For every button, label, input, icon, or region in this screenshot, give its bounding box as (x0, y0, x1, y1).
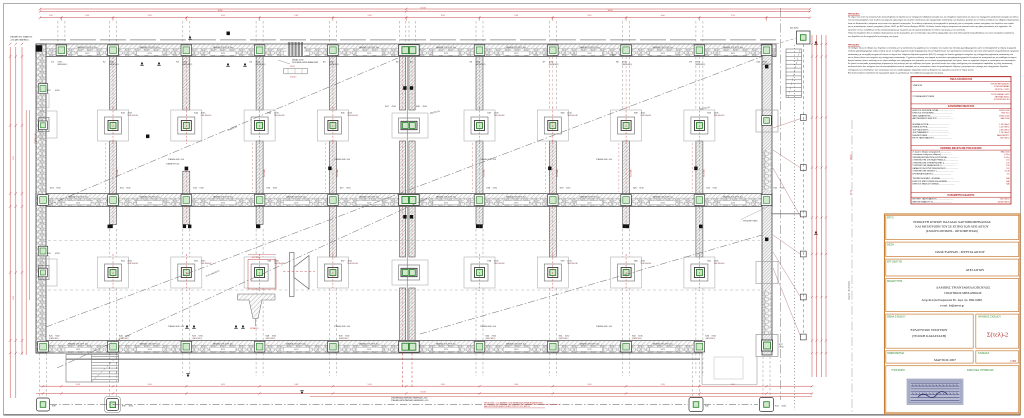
svg-text:ΠΕΔ.180x180: ΠΕΔ.180x180 (128, 262, 138, 265)
svg-text:ΠΕΔ.180x180: ΠΕΔ.180x180 (274, 114, 284, 117)
svg-text:ΠΡΟΣΟΧΗ :: ΠΡΟΣΟΧΗ : (848, 45, 860, 47)
svg-text:ΞΥΛΟΤΥΠΟΣ ΥΠΟΓΕΙΟΥ: ΞΥΛΟΤΥΠΟΣ ΥΠΟΓΕΙΟΥ (910, 328, 948, 332)
svg-text:ΚΙΝΗΤΑ ΦΟΡΤΙΑ.................: ΚΙΝΗΤΑ ΦΟΡΤΙΑ...........................… (913, 126, 949, 129)
svg-text:ΕΛΕΓΧΟΣ ΝΕΩΝ ΣΤΟΙΧΕΙΩΝ........: ΕΛΕΓΧΟΣ ΝΕΩΝ ΣΤΟΙΧΕΙΩΝ..................… (913, 184, 956, 186)
svg-text:Το κτίριο που κατά την κατασκε: Το κτίριο που κατά την κατασκευή θα αποκ… (848, 15, 1018, 18)
svg-text:ΣΤΑΘΜΗ ΑΝΩ ΠΑΡΕΙΑΣ ΘΕΜΕΛΙΩΝ -3: ΣΤΑΘΜΗ ΑΝΩ ΠΑΡΕΙΑΣ ΘΕΜΕΛΙΩΝ -3.60 (391, 396, 427, 399)
svg-text:ΝΑΙ: ΝΑΙ (1006, 177, 1010, 180)
svg-text:ΠΕΔ.180x180: ΠΕΔ.180x180 (347, 262, 357, 265)
svg-text:ΚΑΝΟΝΙΣΜΟΙ ΜΕΛΕΤΗΣ: ΚΑΝΟΝΙΣΜΟΙ ΜΕΛΕΤΗΣ (948, 105, 975, 108)
svg-text:και τις θέσεις όλων των στοιχε: και τις θέσεις όλων των στοιχείων της υπ… (848, 56, 1017, 59)
svg-text:ΝΑΙ: ΝΑΙ (1006, 180, 1010, 183)
svg-text:ΦΡΕΑΤΙΟ: ΦΡΕΑΤΙΟ (250, 327, 259, 330)
svg-text:ΣΥΝΤΕΛΕΣΤΗΣ ΣΕΙΣΜΟΥ ε.........: ΣΥΝΤΕΛΕΣΤΗΣ ΣΕΙΣΜΟΥ ε...................… (913, 171, 955, 173)
svg-text:ΠΕΔ.180x180: ΠΕΔ.180x180 (274, 262, 284, 265)
svg-text:ΣΤΑΘΜΗ ΘΕΜ. -3.60: ΣΤΑΘΜΗ ΘΕΜ. -3.60 (480, 325, 496, 328)
svg-text:40.00: 40.00 (851, 189, 853, 195)
svg-text:50/70: 50/70 (221, 203, 225, 205)
svg-text:50/70: 50/70 (514, 203, 518, 205)
svg-text:ΣΚΥΡΟΔ. C12/15: ΣΚΥΡΟΔ. C12/15 (995, 88, 1010, 91)
svg-text:ΛΙΘΟΔΟΜΗ 80Χ60/15: ΛΙΘΟΔΟΜΗ 80Χ60/15 (991, 83, 1010, 86)
svg-text:α (σεισμική επιτάχυνση εδάφους: α (σεισμική επιτάχυνση εδάφους).........… (913, 153, 953, 156)
svg-text:ΕΠΙΤΡΕΠ. ΤΑΣΗ ΕΔΑΦΟΥΣ.........: ΕΠΙΤΡΕΠ. ΤΑΣΗ ΕΔΑΦΟΥΣ...................… (913, 198, 954, 201)
svg-text:ΜΕΛΕΤΗΤΗΣ: ΜΕΛΕΤΗΤΗΣ (887, 280, 903, 283)
svg-text:70/30: 70/30 (56, 188, 61, 190)
svg-text:ΠΕΔ.180x180: ΠΕΔ.180x180 (494, 114, 504, 117)
svg-text:(ΚΑΤΩ ΝΕΟ): (ΚΑΤΩ ΝΕΟ) (705, 337, 715, 340)
svg-text:ΣΤΑΘΜΗ ΚΑΤΩ ΠΑΡΕΙΑΣ ΘΕΜΕΛΙΩΝ -: ΣΤΑΘΜΗ ΚΑΤΩ ΠΑΡΕΙΑΣ ΘΕΜΕΛΙΩΝ -4.10 (391, 399, 428, 402)
svg-text:παλαιάς χαρτοβιομηχανίας καθώς: παλαιάς χαρτοβιομηχανίας καθώς επίσης κα… (848, 50, 1019, 53)
svg-text:0.80 KN/m2: 0.80 KN/m2 (999, 129, 1009, 131)
svg-text:50/70: 50/70 (444, 349, 448, 351)
svg-text:ΚΡΙΣΙΜΗ ΑΠΟΣΒΕΣΗ ζ............: ΚΡΙΣΙΜΗ ΑΠΟΣΒΕΣΗ ζ......................… (913, 172, 952, 175)
svg-text:200 KN/m2: 200 KN/m2 (1000, 138, 1010, 140)
svg-text:62/30: 62/30 (55, 90, 60, 92)
svg-text:70/30: 70/30 (779, 347, 784, 349)
svg-text:των θεμελίων και θα ενημερωθεί: των θεμελίων και θα ενημερωθεί ο μελετητ… (848, 35, 899, 38)
svg-text:(ΜΕΣΑ ΝΕΟ): (ΜΕΣΑ ΝΕΟ) (256, 63, 266, 66)
svg-text:70/30: 70/30 (273, 188, 278, 190)
svg-text:(ΚΑΤΩ ΝΕΟ): (ΚΑΤΩ ΝΕΟ) (486, 337, 496, 340)
svg-text:ΑΡΙΘΜΟΣ ΣΧΕΔΙΟΥ: ΑΡΙΘΜΟΣ ΣΧΕΔΙΟΥ (978, 315, 1001, 318)
svg-text:ΝΑΙ: ΝΑΙ (1006, 183, 1010, 186)
svg-text:Φ12/15: Φ12/15 (290, 75, 296, 78)
svg-text:50/70: 50/70 (148, 53, 152, 55)
svg-text:70/30: 70/30 (780, 188, 785, 190)
svg-text:50/70: 50/70 (514, 53, 518, 55)
svg-text:200 KN/m2: 200 KN/m2 (1000, 199, 1010, 201)
svg-text:ΠΕΔ.180x180: ΠΕΔ.180x180 (128, 114, 138, 117)
svg-text:70/30: 70/30 (126, 188, 131, 190)
svg-text:ΠΕΔ.180x180: ΠΕΔ.180x180 (641, 114, 651, 117)
svg-text:ΠΕΔ.180x180: ΠΕΔ.180x180 (201, 114, 211, 117)
svg-text:(ΜΕΣΑ ΝΕΟ): (ΜΕΣΑ ΝΕΟ) (549, 63, 559, 66)
svg-text:ΕΛΕΓΧΟΣ ΦΕΡΟΝΤΑ ΟΡΓΑΝ.........: ΕΛΕΓΧΟΣ ΦΕΡΟΝΤΑ ΟΡΓΑΝ...................… (913, 109, 956, 112)
svg-text:που θα αποκαλυφθούν από τα μέλ: που θα αποκαλυφθούν από τα μέλη του φέρο… (848, 19, 1019, 22)
svg-text:37.05: 37.05 (420, 391, 426, 393)
svg-text:50/70: 50/70 (85, 53, 89, 55)
svg-text:ΦΟΡΤΙΑ ΧΙΟΝΙΟΥ................: ΦΟΡΤΙΑ ΧΙΟΝΙΟΥ..........................… (913, 128, 949, 131)
svg-text:50/70: 50/70 (76, 349, 80, 351)
svg-text:50/70: 50/70 (587, 349, 591, 351)
svg-text:-2.80 (ΑΠΟ ΔΑΠΕΔΟ): -2.80 (ΑΠΟ ΔΑΠΕΔΟ) (10, 38, 29, 41)
svg-text:Οι στάθμες πάνω σε εδάφιο των: Οι στάθμες πάνω σε εδάφιο των θεμελίων η… (848, 47, 1017, 50)
svg-text:οριστούν επί των υποδείξεων εν: οριστούν επί των υποδείξεων εντός κατασκ… (848, 28, 966, 31)
svg-text:ΘΕΜΑ ΣΧΕΔΙΟΥ: ΘΕΜΑ ΣΧΕΔΙΟΥ (887, 315, 906, 318)
svg-text:ΚΑΤΑΚΟΡΥΦΗ ΣΥΝΙΣΤΩΣΑ ΣΕΙΣΜΟΥ..: ΚΑΤΑΚΟΡΥΦΗ ΣΥΝΙΣΤΩΣΑ ΣΕΙΣΜΟΥ............… (913, 167, 959, 170)
svg-text:e-mail : ltri@otenet.gr: e-mail : ltri@otenet.gr (940, 304, 964, 307)
svg-text:ΕΑΚ 2000: ΕΑΚ 2000 (1001, 117, 1010, 120)
svg-text:(ΚΑΤΩ ΝΕΟ): (ΚΑΤΩ ΝΕΟ) (49, 337, 59, 340)
svg-text:30/30: 30/30 (129, 406, 134, 408)
svg-text:(ΜΕΣΑ ΝΕΟ): (ΜΕΣΑ ΝΕΟ) (695, 63, 705, 66)
svg-text:ΑΤΕΙ ΑΙΓΙΟΥ: ΑΤΕΙ ΑΙΓΙΟΥ (966, 268, 985, 272)
svg-text:ΕΡΓΟ: ΕΡΓΟ (887, 217, 894, 220)
svg-text:ΣΤΑΘΜΗ ΦΥΣ. ΕΔΑΦΟΥΣ: ΣΤΑΘΜΗ ΦΥΣ. ΕΔΑΦΟΥΣ (10, 36, 33, 39)
svg-text:Ζ: ζώνη ΙΙ, έδαφος κατηγορίας: Ζ: ζώνη ΙΙ, έδαφος κατηγορίας Β.........… (913, 150, 952, 153)
svg-text:ΠΕΔ.180x180: ΠΕΔ.180x180 (714, 114, 724, 117)
svg-text:70/30: 70/30 (566, 188, 571, 190)
svg-text:0.24 g: 0.24 g (1004, 157, 1009, 159)
svg-text:ΘΕΣΗ: ΘΕΣΗ (887, 243, 894, 246)
svg-text:2Φ16 ΑΝΩ+ΚΑΤΩ ΑΝΑΜΟΝΕΣ: 2Φ16 ΑΝΩ+ΚΑΤΩ ΑΝΑΜΟΝΕΣ (292, 61, 319, 64)
svg-text:K57 45/45: K57 45/45 (252, 257, 260, 259)
svg-text:ΠΕΔ.180x180: ΠΕΔ.180x180 (567, 114, 577, 117)
svg-text:ΔΕΙΚΤΗΣ ΕΔΑΦΟΥΣ Ks............: ΔΕΙΚΤΗΣ ΕΔΑΦΟΥΣ Ks......................… (913, 200, 953, 203)
svg-text:ΣΤΑΘΜΗ ΘΕΜ. -3.60: ΣΤΑΘΜΗ ΘΕΜ. -3.60 (168, 325, 184, 328)
svg-text:ΕΠΙΤΡ. ΤΑΣΗ ΕΔΑΦΟΥΣ...........: ΕΠΙΤΡ. ΤΑΣΗ ΕΔΑΦΟΥΣ.....................… (913, 137, 952, 140)
svg-text:ΥΠΟΓΡΑΦΗ: ΥΠΟΓΡΑΦΗ (891, 369, 905, 372)
svg-text:αναλυτικά όλων των στοιχείων π: αναλυτικά όλων των στοιχείων που θα αποκ… (848, 65, 1008, 68)
svg-text:Ασημ.Φωτήλα-Ρουφανιώλα 66 - Αί: Ασημ.Φωτήλα-Ρουφανιώλα 66 - Αίγιο τηλ. 0… (922, 299, 983, 302)
svg-text:Τ4 25/100: Τ4 25/100 (630, 169, 632, 177)
svg-text:ΠΡΟΣΟΧΗ :: ΠΡΟΣΟΧΗ : (848, 13, 860, 15)
svg-text:70/30: 70/30 (493, 188, 498, 190)
svg-text:50/70: 50/70 (514, 349, 518, 351)
svg-text:ΩΘΗΣΕΙΣ ΓΑΙΩΝ.................: ΩΘΗΣΕΙΣ ΓΑΙΩΝ...........................… (913, 134, 949, 137)
svg-text:ΥΛΙΚΑ ΚΑΤΑΣΚΕΥΗΣ: ΥΛΙΚΑ ΚΑΤΑΣΚΕΥΗΣ (950, 78, 973, 81)
svg-text:ΕΠΙΣΚΕΥΗ ΚΤΙΡΙΟΥ ΠΑΛΑΙΑΣ ΧΑΡΤΟ: ΕΠΙΣΚΕΥΗ ΚΤΙΡΙΟΥ ΠΑΛΑΙΑΣ ΧΑΡΤΟΒΙΟΜΗΧΑΝΙΑ… (913, 220, 991, 224)
svg-text:θα γίνουν οι αναγκαίες προσαρμ: θα γίνουν οι αναγκαίες προσαρμογές σύμφω… (848, 62, 1013, 65)
svg-text:62/30: 62/30 (55, 253, 60, 255)
svg-text:ΞΥΛΑ ΚΑΣΤΑΝΙΑΣ: ΞΥΛΑ ΚΑΣΤΑΝΙΑΣ (994, 85, 1010, 88)
svg-text:1.00: 1.00 (1006, 165, 1010, 167)
svg-text:ΚΑΤΑ ΠΕΡΙΠΤ.: ΚΑΤΑ ΠΕΡΙΠΤ. (997, 134, 1010, 137)
svg-text:70/30: 70/30 (712, 188, 717, 190)
svg-text:1.15: 1.15 (1006, 160, 1010, 162)
svg-text:50/70: 50/70 (221, 349, 225, 351)
svg-text:(ΜΕΣΑ ΝΕΟ): (ΜΕΣΑ ΝΕΟ) (182, 63, 192, 66)
svg-text:(ΚΑΤΩ ΝΕΟ): (ΚΑΤΩ ΝΕΟ) (632, 337, 642, 340)
svg-text:ΚΑΙ ΜΕΤΑΤΡΟΠΗ ΤΟΥ ΣΕ ΚΤΙΡΙΟ ΤΩ: ΚΑΙ ΜΕΤΑΤΡΟΠΗ ΤΟΥ ΣΕ ΚΤΙΡΙΟ ΤΩΝ ΑΤΕΙ ΑΙΓ… (915, 224, 989, 228)
svg-text:ΚΛΙΜΑΚΑ: ΚΛΙΜΑΚΑ (978, 352, 989, 355)
svg-text:ΠΕΔ.180x180: ΠΕΔ.180x180 (714, 262, 724, 265)
svg-text:Εάν διαπιστωθούν αποκλίσεις θα: Εάν διαπιστωθούν αποκλίσεις θα ενημερωθε… (848, 71, 944, 74)
svg-text:ΝΕΕΣ ΚΑΤΑΣΚΕΥΕΣ...............: ΝΕΕΣ ΚΑΤΑΣΚΕΥΕΣ.........................… (913, 114, 951, 117)
svg-text:70/30: 70/30 (346, 188, 351, 190)
svg-text:1.50: 1.50 (1006, 162, 1010, 164)
svg-text:(ΚΑΤΩ ΝΕΟ): (ΚΑΤΩ ΝΕΟ) (119, 337, 129, 340)
svg-text:ΕΛΕΓΧΟΣ ΛΙΘΟΔΟΜΗΣ.............: ΕΛΕΓΧΟΣ ΛΙΘΟΔΟΜΗΣ.......................… (913, 112, 953, 115)
svg-text:ΗΜΕΡΟΜΗΝΙΑ: ΗΜΕΡΟΜΗΝΙΑ (887, 352, 905, 355)
svg-text:Σ(τελ)-2: Σ(τελ)-2 (987, 332, 1008, 339)
svg-text:(ΚΑΤΩ ΝΕΟ): (ΚΑΤΩ ΝΕΟ) (266, 337, 276, 340)
svg-text:εκπλήρωση των απαιτήσεων των κ: εκπλήρωση των απαιτήσεων των κανονισμών … (848, 68, 975, 71)
svg-text:ΣΥΝΤΕΛΕΣΤΗΣ ΘΕΜΕΛΙΩΣΗΣ θ......: ΣΥΝΤΕΛΕΣΤΗΣ ΘΕΜΕΛΙΩΣΗΣ θ................… (913, 165, 957, 167)
svg-text:Τ4 25/100: Τ4 25/100 (484, 169, 486, 177)
svg-text:ΠΕΔ.180x180: ΠΕΔ.180x180 (567, 262, 577, 265)
svg-text:ΧΑΛΥΒΑΣ B500C: ΧΑΛΥΒΑΣ B500C (995, 96, 1011, 99)
svg-text:ΣΤΟΙΧΕΙΑ ΕΝΙΣΧΥΣΕΩΝ: ΣΤΟΙΧΕΙΑ ΕΝΙΣΧΥΣΕΩΝ (913, 95, 935, 98)
svg-text:50/70: 50/70 (367, 53, 371, 55)
svg-text:Τέλος θα ελεγχθούν όλες οι στά: Τέλος θα ελεγχθούν όλες οι στάθμες θεμελ… (848, 32, 1014, 35)
svg-text:ΜΟΝΙΜΑ ΦΟΡΤΙΑ.................: ΜΟΝΙΜΑ ΦΟΡΤΙΑ...........................… (913, 123, 950, 126)
svg-text:70/30: 70/30 (199, 188, 204, 190)
svg-text:Τ4 25/100: Τ4 25/100 (264, 169, 266, 177)
svg-text:ΜΑΡΤΙΟΣ 2007: ΜΑΡΤΙΟΣ 2007 (934, 358, 956, 362)
svg-text:ΣΤΑΘΜΗ ΘΕΜ. -3.60: ΣΤΑΘΜΗ ΘΕΜ. -3.60 (596, 325, 612, 328)
svg-text:ΚΟΧΛΙΕΣ M16 8.8: ΚΟΧΛΙΕΣ M16 8.8 (994, 99, 1010, 101)
svg-text:ΕΚ6 §5.3: ΕΚ6 §5.3 (1002, 113, 1010, 115)
svg-text:50/70: 50/70 (148, 203, 152, 205)
svg-text:30/30: 30/30 (782, 406, 787, 408)
svg-text:ΣΕΙΣΜΙΚΗ ΕΠΙΤΑΧΥΝΣΗ (ΟΡΙΖΟΝΤΙΑ: ΣΕΙΣΜΙΚΗ ΕΠΙΤΑΧΥΝΣΗ (ΟΡΙΖΟΝΤΙΑ).........… (913, 156, 959, 159)
svg-text:ΠΕΔ.180x180: ΠΕΔ.180x180 (641, 262, 651, 265)
svg-text:70/30: 70/30 (639, 188, 644, 190)
svg-text:ΣΕΙΣΜΙΚΗ ΜΕΛΕΤΗ ΜΕ ΤΟΝ ΕΑΚ2000: ΣΕΙΣΜΙΚΗ ΜΕΛΕΤΗ ΜΕ ΤΟΝ ΕΑΚ2000 (940, 147, 982, 150)
svg-text:διαρκεί ωσότου γίνουν επίλυση: διαρκεί ωσότου γίνουν επίλυση με τον κύρ… (848, 59, 1015, 62)
svg-text:ΟΔΟΣ ΨΑΡΡΩΝ: ΟΔΟΣ ΨΑΡΡΩΝ (847, 281, 851, 300)
svg-text:ΕΚΩΣ 2000: ΕΚΩΣ 2000 (999, 110, 1009, 112)
svg-text:1.20 KN/m2: 1.20 KN/m2 (999, 132, 1009, 134)
svg-text:30000 KN/m3: 30000 KN/m3 (998, 201, 1010, 203)
svg-text:ΣΥΝΤΕΛΕΣΤΗΣ ΣΠΟΥΔΑΙΟΤΗΤΑΣ γ1..: ΣΥΝΤΕΛΕΣΤΗΣ ΣΠΟΥΔΑΙΟΤΗΤΑΣ γ1............… (913, 159, 959, 162)
svg-text:ΛΑΜΠΗΣ ΤΡΙΑΝΤΑΦΥΛΛΟΠΟΥΛΟΣ: ΛΑΜΠΗΣ ΤΡΙΑΝΤΑΦΥΛΛΟΠΟΥΛΟΣ (936, 285, 990, 289)
svg-text:ΠΕΔ.180x180: ΠΕΔ.180x180 (347, 114, 357, 117)
svg-text:(ΚΑΤΩ ΝΕΟ): (ΚΑΤΩ ΝΕΟ) (339, 337, 349, 340)
svg-text:ΦΟΡΤΙΑ ΑΝΕΜΟΥ.................: ΦΟΡΤΙΑ ΑΝΕΜΟΥ...........................… (913, 131, 950, 134)
svg-text:37.05: 37.05 (420, 7, 426, 9)
svg-text:ΑΝΤΙΣΕΙΣΜΙΚΟΣ ΕΛΕΓΧΟΣ.........: ΑΝΤΙΣΕΙΣΜΙΚΟΣ ΕΛΕΓΧΟΣ...................… (913, 117, 954, 120)
svg-text:50/70: 50/70 (76, 203, 80, 205)
svg-text:2Φ16: 2Φ16 (290, 65, 295, 68)
svg-text:ώστε να διαπιστωθεί η επάρκειά: ώστε να διαπιστωθεί η επάρκειά τους έναν… (848, 22, 1015, 25)
svg-text:50/70: 50/70 (444, 203, 448, 205)
svg-text:κατάστασης με τα ακριβή στοιχε: κατάστασης με τα ακριβή στοιχεία επί τόπ… (848, 53, 1014, 56)
svg-text:ΥΠΑΡΧΟΝ: ΥΠΑΡΧΟΝ (913, 84, 923, 87)
svg-text:Τ4 25/100: Τ4 25/100 (704, 169, 706, 177)
svg-text:(ΜΕΣΑ ΝΕΟ): (ΜΕΣΑ ΝΕΟ) (476, 63, 486, 66)
svg-text:50/70: 50/70 (731, 53, 735, 55)
svg-text:50/70: 50/70 (661, 349, 665, 351)
svg-text:(ΚΑΤΩ ΝΕΟ): (ΚΑΤΩ ΝΕΟ) (192, 337, 202, 340)
svg-text:18.30: 18.30 (217, 10, 223, 12)
svg-text:45/45: 45/45 (423, 106, 428, 108)
svg-text:(ΤΕΛΙΚΗ ΚΑΤΑΣΤΑΣΗ): (ΤΕΛΙΚΗ ΚΑΤΑΣΤΑΣΗ) (912, 334, 946, 338)
svg-text:(ΜΕΣΑ ΝΕΟ): (ΜΕΣΑ ΝΕΟ) (57, 63, 67, 66)
svg-text:1.30 KN/m2: 1.30 KN/m2 (999, 124, 1009, 126)
svg-text:50/70: 50/70 (148, 349, 152, 351)
svg-text:50/70: 50/70 (587, 53, 591, 55)
svg-text:ΣΚΥΡΟΔΕΜΑ C20/25: ΣΚΥΡΟΔΕΜΑ C20/25 (991, 93, 1009, 96)
svg-text:50/70: 50/70 (294, 203, 298, 205)
svg-text:Τ4 25/100: Τ4 25/100 (557, 169, 559, 177)
svg-text:ΠΡΟΣΟΧΗ : ΟΙ ΣΤΑΘΜΕΣ ΤΩΝ ΘΕΜΕΛ: ΠΡΟΣΟΧΗ : ΟΙ ΣΤΑΘΜΕΣ ΤΩΝ ΘΕΜΕΛΙΩΝ ΕΙΝΑΙ … (484, 401, 544, 404)
svg-text:50/70: 50/70 (221, 53, 225, 55)
svg-text:(ΜΕΣΑ ΝΕΟ): (ΜΕΣΑ ΝΕΟ) (329, 63, 339, 66)
svg-text:(ΜΕΣΑ ΝΕΟ): (ΜΕΣΑ ΝΕΟ) (109, 63, 119, 66)
svg-text:ΤΩΡΙΝΕΣ ΔΟΚΙΜΕΣ - ΔΟΚΙΜΙΑ.....: ΤΩΡΙΝΕΣ ΔΟΚΙΜΕΣ - ΔΟΚΙΜΙΑ...............… (913, 177, 955, 180)
svg-text:50/70: 50/70 (367, 349, 371, 351)
svg-text:50/70: 50/70 (731, 203, 735, 205)
svg-text:ΣΤΑΘΜΗ ΘΕΜ. -3.60: ΣΤΑΘΜΗ ΘΕΜ. -3.60 (168, 158, 184, 161)
svg-text:50/70: 50/70 (587, 203, 591, 205)
svg-text:1:50: 1:50 (1010, 359, 1016, 363)
svg-text:50/70: 50/70 (294, 349, 298, 351)
svg-text:(ΜΕΣΑ ΝΕΟ): (ΜΕΣΑ ΝΕΟ) (622, 63, 632, 66)
svg-text:(ΜΕΣΑ ΝΕΟ): (ΜΕΣΑ ΝΕΟ) (763, 63, 773, 66)
svg-text:Τ4 25/100: Τ4 25/100 (337, 169, 339, 177)
svg-text:ΠΕΔ.180x180: ΠΕΔ.180x180 (201, 262, 211, 265)
svg-text:ΠΑΡΑΜΕΤΡΟΙ ΕΔΑΦΟΥΣ: ΠΑΡΑΜΕΤΡΟΙ ΕΔΑΦΟΥΣ (947, 194, 975, 197)
svg-text:ΣΥΝΤΕΛΕΣΤΗΣ ΣΥΜΠΕΡΙΦΟΡΑΣ q....: ΣΥΝΤΕΛΕΣΤΗΣ ΣΥΜΠΕΡΙΦΟΡΑΣ q..............… (913, 161, 959, 164)
svg-text:(ΣΧΟΛΗ ΟΠΤΙΚΗΣ - ΟΠΤΟΜΕΤΡΙΑΣ): (ΣΧΟΛΗ ΟΠΤΙΚΗΣ - ΟΠΤΟΜΕΤΡΙΑΣ) (926, 229, 978, 233)
svg-text:45/45: 45/45 (392, 106, 397, 108)
svg-text:ΣΦΡΑΓΙΔΑ ΥΠΗΡΕΣΙΑΣ: ΣΦΡΑΓΙΔΑ ΥΠΗΡΕΣΙΑΣ (967, 369, 994, 372)
svg-text:ΣΤΑΘΜΗ ΘΕΜ. -3.60: ΣΤΑΘΜΗ ΘΕΜ. -3.60 (334, 325, 350, 328)
svg-text:5%: 5% (1007, 173, 1010, 175)
svg-text:50/70: 50/70 (661, 53, 665, 55)
svg-text:ΟΔΟΣ: ΟΔΟΣ (850, 154, 853, 160)
svg-text:50/70: 50/70 (444, 53, 448, 55)
svg-text:ΕΚΩΣ 2000: ΕΚΩΣ 2000 (999, 115, 1009, 117)
svg-text:50/70: 50/70 (661, 203, 665, 205)
svg-text:ΕΛΕΓΧΟΣ ΕΝΙΣΧΥΣΕΩΝ ΛΙΘΟΔΟΜΩΝ..: ΕΛΕΓΧΟΣ ΕΝΙΣΧΥΣΕΩΝ ΛΙΘΟΔΟΜΩΝ............… (913, 180, 961, 183)
svg-text:ΠΕΔ.180x180: ΠΕΔ.180x180 (494, 262, 504, 265)
svg-text:για τις απαιτούμενες τοπικές ε: για τις απαιτούμενες τοπικές ενισχύσεις … (848, 25, 1012, 28)
svg-text:ΕΡΓΟΔΟΤΗΣ: ΕΡΓΟΔΟΤΗΣ (887, 260, 902, 263)
svg-text:ΘΑ ΟΡΙΣΤΙΚΟΠΟΙΗΘΟΥΝ ΕΠΙ ΤΟΠΟΥ: ΘΑ ΟΡΙΣΤΙΚΟΠΟΙΗΘΟΥΝ ΕΠΙ ΤΟΠΟΥ ΤΟΥ ΕΡΓΟΥ (484, 405, 531, 408)
svg-text:ΣΤΑΘΜΗ ΘΕΜ. -3.60: ΣΤΑΘΜΗ ΘΕΜ. -3.60 (480, 158, 496, 161)
svg-text:ΕΑΚ 2000: ΕΑΚ 2000 (1001, 150, 1010, 153)
svg-text:18.40: 18.40 (607, 10, 613, 12)
svg-text:0.24 g: 0.24 g (1004, 154, 1009, 156)
svg-text:ΟΧΙ: ΟΧΙ (1006, 168, 1010, 170)
svg-text:5.00 KN/m2: 5.00 KN/m2 (999, 127, 1009, 129)
svg-text:ΣΤΑΘΜΗ ΘΕΜ. -3.60: ΣΤΑΘΜΗ ΘΕΜ. -3.60 (334, 158, 350, 161)
svg-text:ΟΔΟΣ ΨΑΡΡΩΝ - ΜΥΡΤΙΑ ΑΙΓΙΟΥ: ΟΔΟΣ ΨΑΡΡΩΝ - ΜΥΡΤΙΑ ΑΙΓΙΟΥ (935, 250, 985, 254)
svg-text:(ΚΑΤΩ ΝΕΟ): (ΚΑΤΩ ΝΕΟ) (559, 337, 569, 340)
svg-text:0.138: 0.138 (1005, 171, 1010, 173)
svg-text:ΣΤΑΘΜΗ ΘΕΜ. -3.60: ΣΤΑΘΜΗ ΘΕΜ. -3.60 (596, 158, 612, 161)
svg-text:ΠΟΛΙΤΙΚΟΣ ΜΗΧΑΝΙΚΟΣ: ΠΟΛΙΤΙΚΟΣ ΜΗΧΑΝΙΚΟΣ (944, 291, 981, 295)
svg-text:K42 30/30: K42 30/30 (790, 28, 798, 30)
